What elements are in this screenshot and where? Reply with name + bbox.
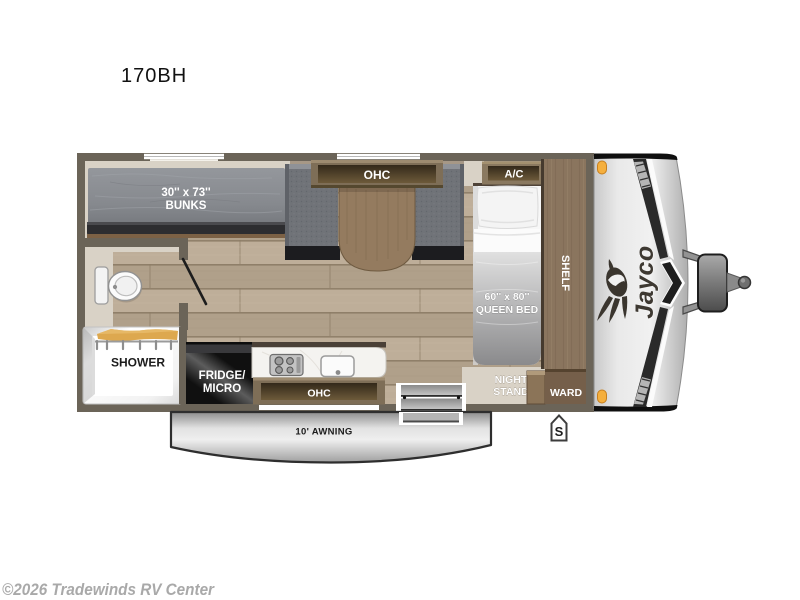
svg-text:©2026 Tradewinds RV Center: ©2026 Tradewinds RV Center xyxy=(2,580,215,599)
svg-text:30'' x 73'': 30'' x 73'' xyxy=(161,187,211,199)
svg-text:60'' x 80'': 60'' x 80'' xyxy=(484,291,529,303)
svg-text:WARD: WARD xyxy=(550,387,582,399)
svg-text:10' AWNING: 10' AWNING xyxy=(295,427,352,438)
svg-text:SHELF: SHELF xyxy=(559,255,571,291)
svg-text:170BH: 170BH xyxy=(121,65,187,87)
svg-text:MICRO: MICRO xyxy=(203,383,241,395)
svg-text:FRIDGE/: FRIDGE/ xyxy=(199,370,246,382)
svg-text:Jayco: Jayco xyxy=(631,245,659,318)
svg-text:OHC: OHC xyxy=(364,168,391,182)
svg-text:A/C: A/C xyxy=(505,169,524,181)
svg-text:STAND: STAND xyxy=(493,386,529,398)
svg-text:OHC: OHC xyxy=(307,388,331,400)
svg-text:S: S xyxy=(555,424,564,439)
svg-text:QUEEN BED: QUEEN BED xyxy=(476,304,539,316)
svg-text:BUNKS: BUNKS xyxy=(166,200,207,212)
svg-text:SHOWER: SHOWER xyxy=(111,356,165,370)
svg-text:NIGHT: NIGHT xyxy=(495,374,528,386)
